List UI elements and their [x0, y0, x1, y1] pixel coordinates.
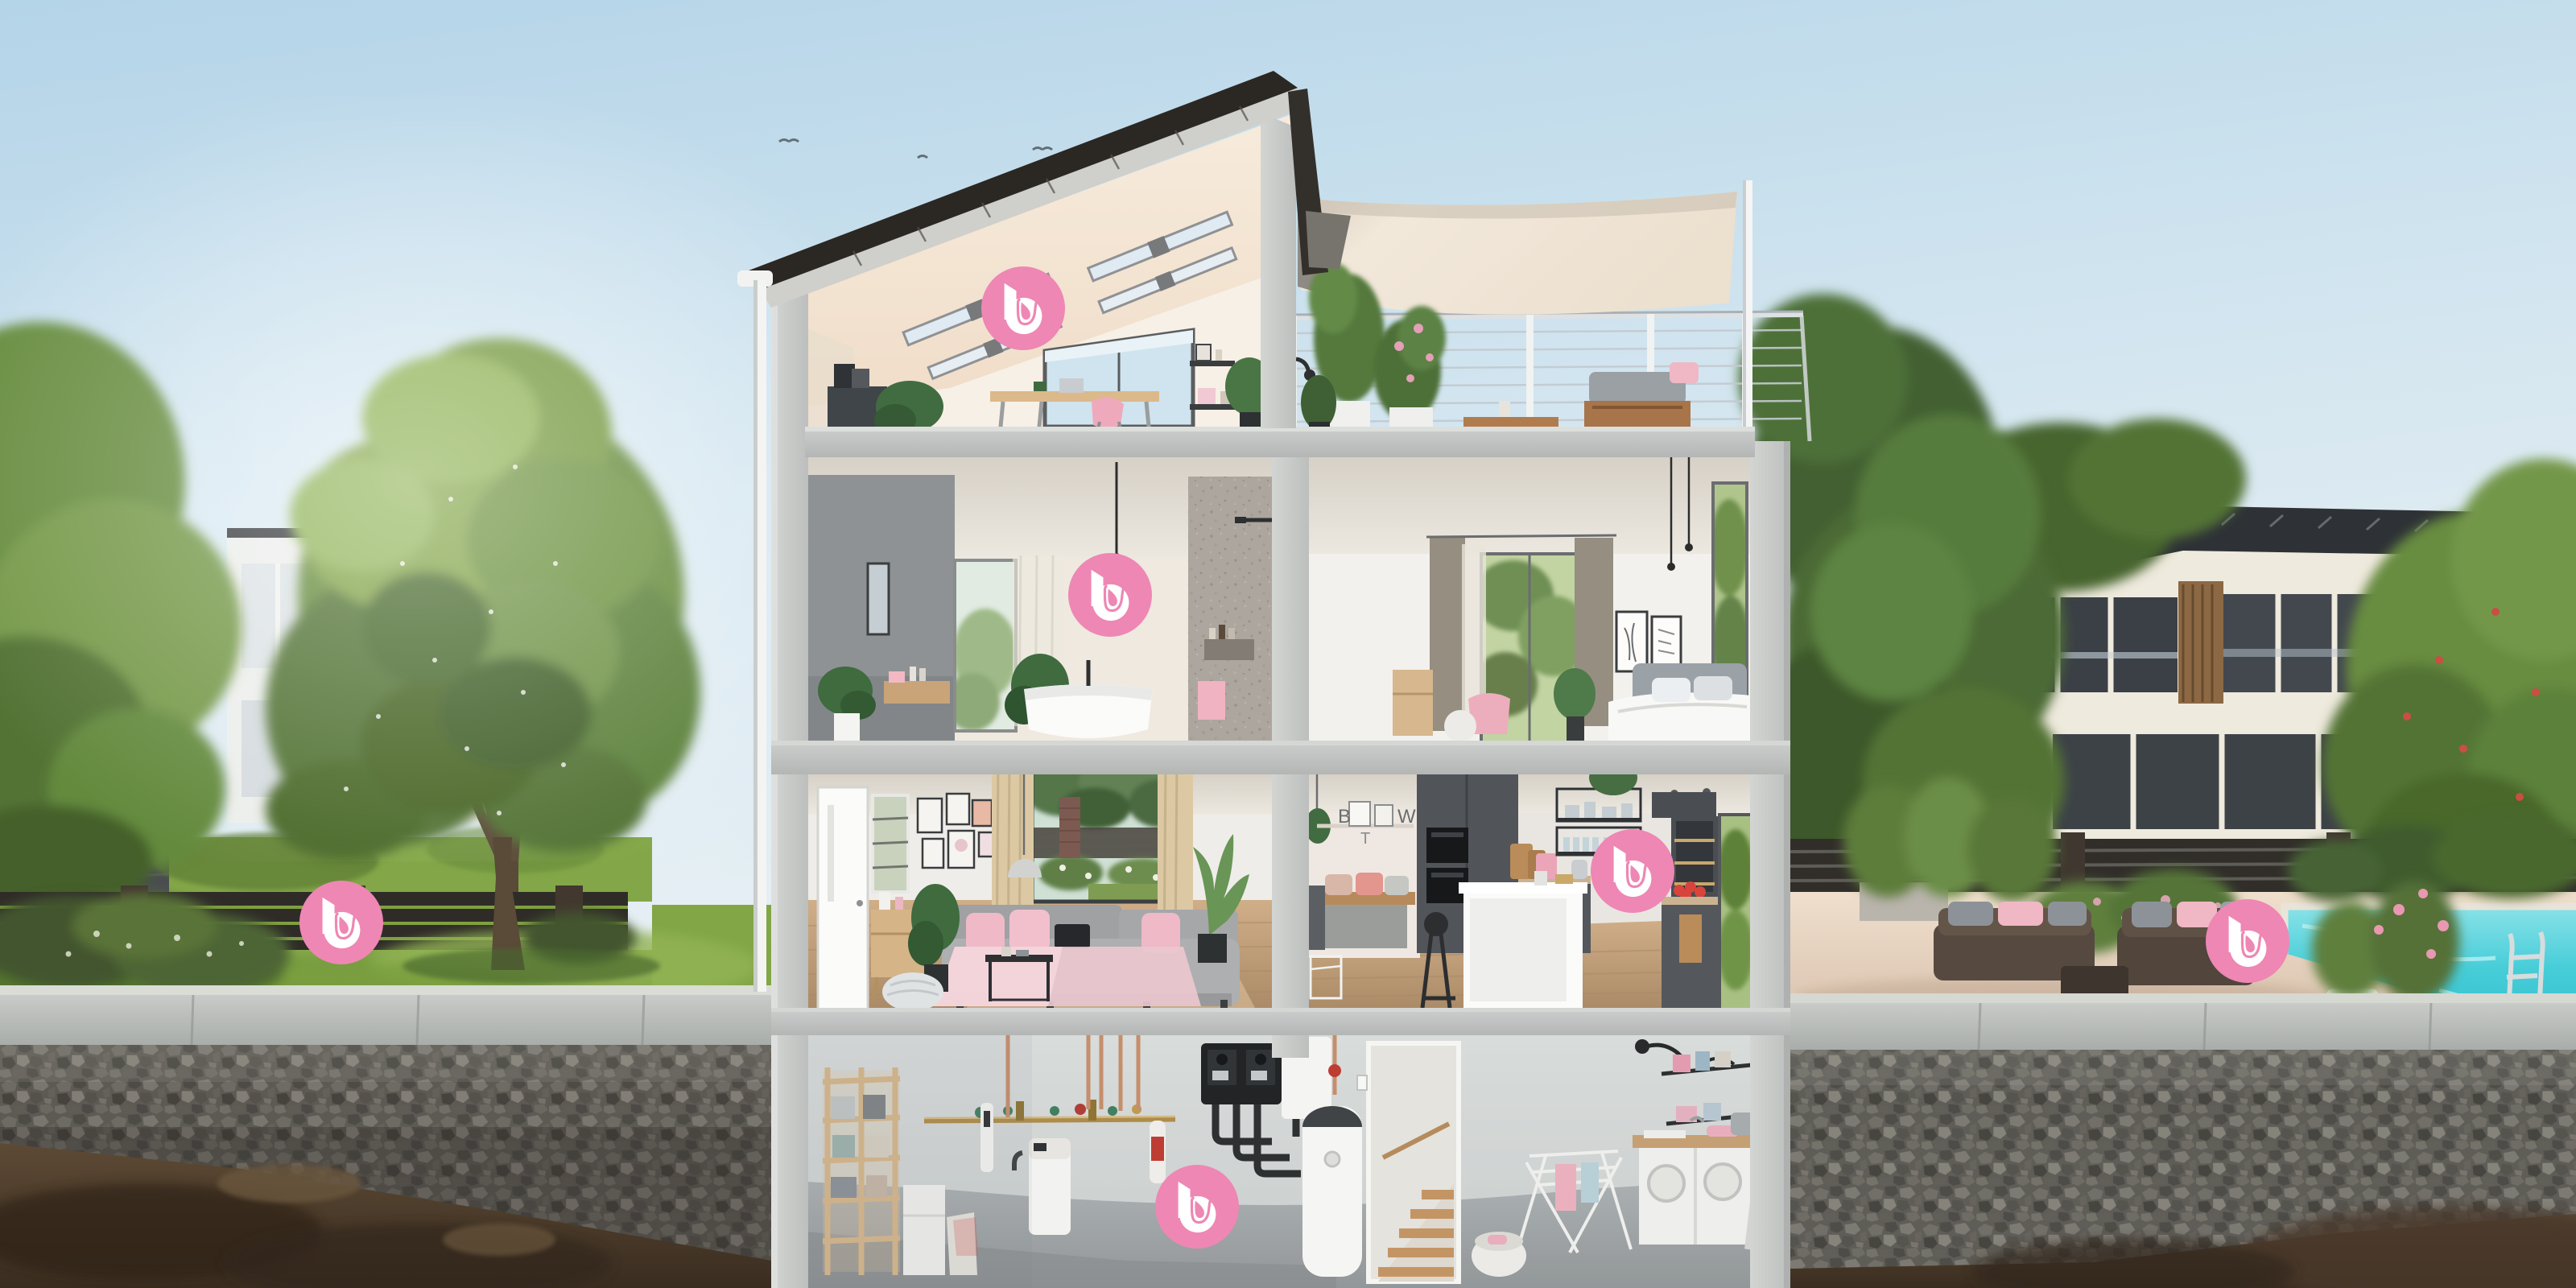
svg-text:W: W [1397, 806, 1416, 828]
svg-text:T: T [1360, 830, 1370, 848]
svg-text:B: B [1338, 806, 1351, 828]
